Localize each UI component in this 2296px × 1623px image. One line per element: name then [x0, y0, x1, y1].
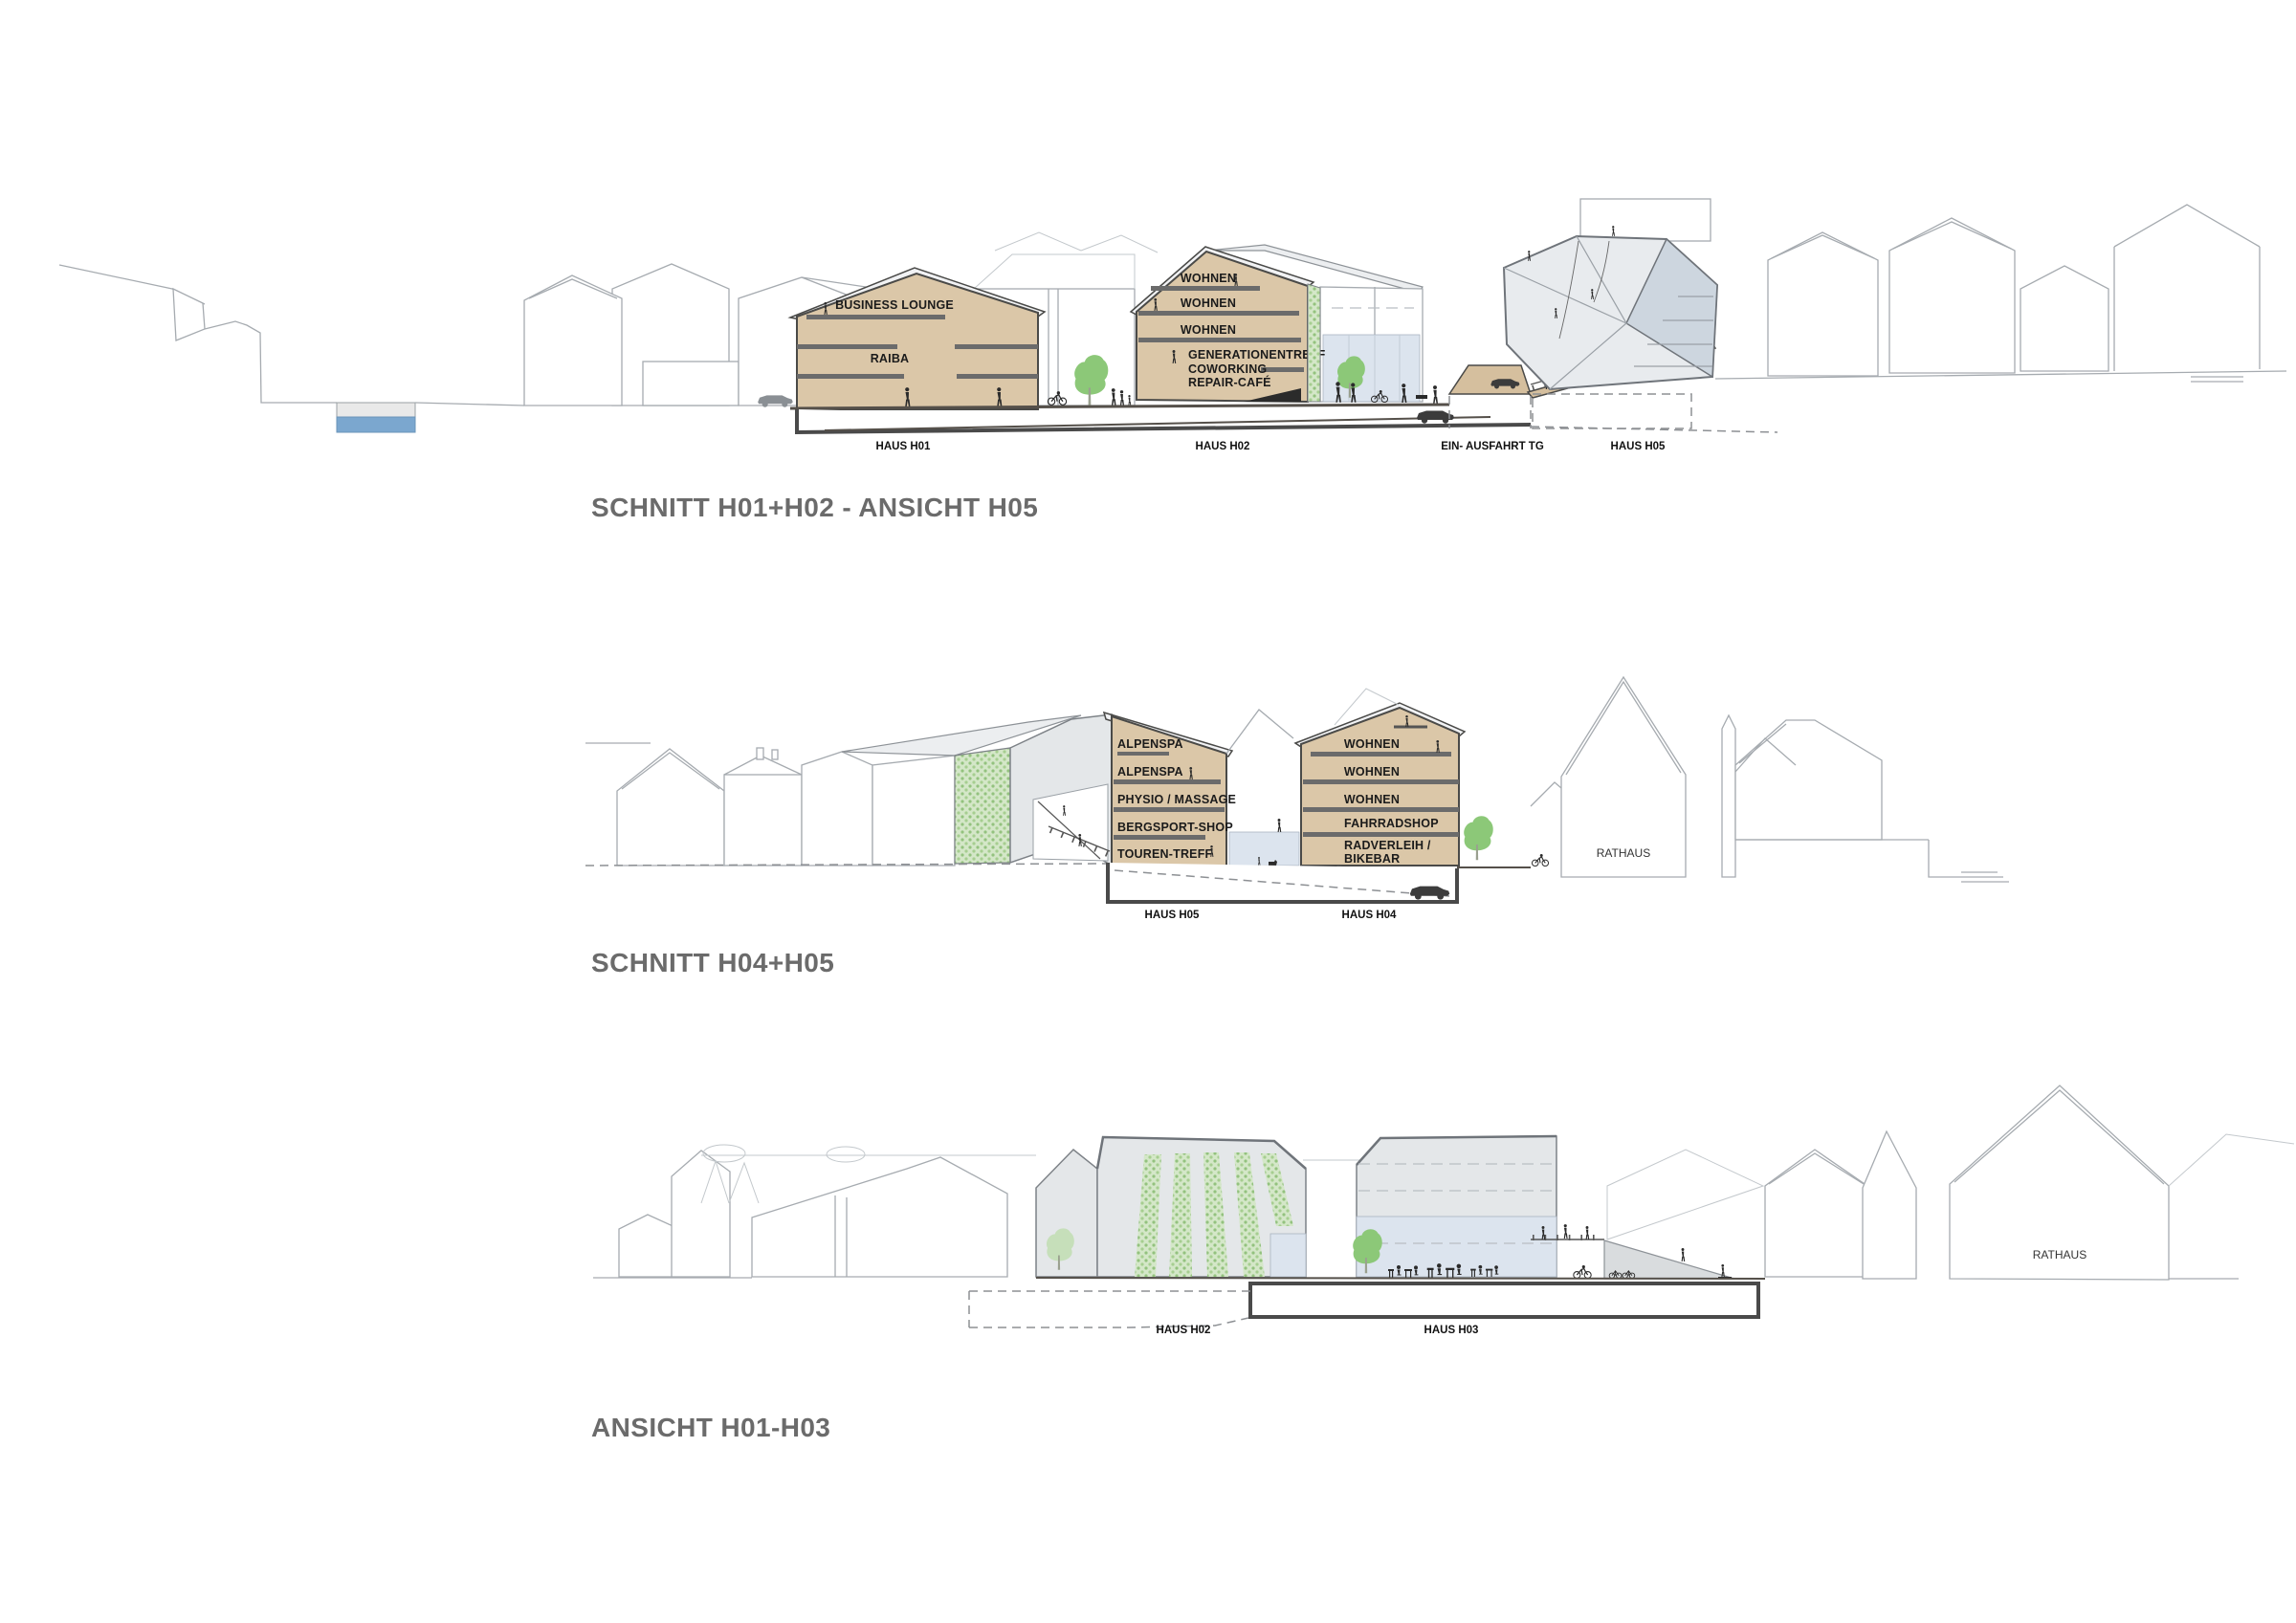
- haus-h05-section: ALPENSPA ALPENSPA PHYSIO / MASSAGE BERGS…: [1104, 713, 1236, 866]
- ground-label-tg: EIN- AUSFAHRT TG: [1441, 441, 1544, 452]
- context-buildings-left: [593, 1145, 1036, 1278]
- ramp-east: [1531, 1150, 1763, 1279]
- haus-h02-elevation: [1097, 1137, 1306, 1277]
- ground-label-h05: HAUS H05: [1145, 910, 1200, 921]
- cyclist-icon: [1532, 854, 1548, 866]
- water-basin: [337, 417, 415, 432]
- ground-label-h02: HAUS H02: [1196, 441, 1250, 452]
- ground-label-h04: HAUS H04: [1342, 910, 1397, 921]
- drawing-schnitt-h01-h02: BUSINESS LOUNGE RAIBA: [59, 199, 2286, 522]
- terrain-hut: [173, 289, 205, 340]
- haus-h04-section: WOHNEN WOHNEN WOHNEN FAHRRADSHOP RADVERL…: [1295, 689, 1465, 866]
- terrain-profile: [59, 265, 524, 432]
- person-icon: [1682, 1248, 1686, 1261]
- drawing-title: ANSICHT H01-H03: [591, 1413, 830, 1442]
- room-label-repair-cafe: REPAIR-CAFÉ: [1188, 375, 1271, 389]
- car-icon: [1417, 411, 1454, 424]
- room-label-wohnen: WOHNEN: [1344, 765, 1400, 779]
- ground-label-h01: HAUS H01: [876, 441, 931, 452]
- context-buildings-right: RATHAUS: [1531, 677, 2009, 882]
- architectural-sheet: BUSINESS LOUNGE RAIBA: [0, 0, 2296, 1623]
- context-buildings-right: RATHAUS: [1765, 1086, 2294, 1280]
- room-label-wohnen: WOHNEN: [1181, 296, 1236, 310]
- underground-garage: [585, 863, 1531, 902]
- h05-footprint-dashed: [1533, 394, 1691, 428]
- haus-h03-elevation: [1303, 1136, 1556, 1278]
- room-label-wohnen: WOHNEN: [1181, 323, 1236, 337]
- context-buildings-right: [1715, 205, 2286, 382]
- ground-label-h03: HAUS H03: [1424, 1325, 1479, 1336]
- room-label-wohnen: WOHNEN: [1344, 737, 1400, 751]
- cyclist-icon: [1574, 1265, 1591, 1279]
- context-label-rathaus: RATHAUS: [1597, 846, 1650, 860]
- tree-icon: [1464, 816, 1493, 860]
- drawing-schnitt-h04-h05: ALPENSPA ALPENSPA PHYSIO / MASSAGE BERGS…: [585, 677, 2009, 977]
- h03-basement-box: [1250, 1283, 1758, 1317]
- room-label-alpenspa: ALPENSPA: [1117, 765, 1183, 779]
- person-icon: [1564, 1224, 1568, 1239]
- room-label-wohnen: WOHNEN: [1344, 793, 1400, 806]
- water-basin-rim: [337, 403, 415, 417]
- room-label-bikebar: BIKEBAR: [1344, 852, 1400, 866]
- person-icon: [1433, 385, 1438, 404]
- room-label-coworking: COWORKING: [1188, 362, 1267, 376]
- drawing-canvas: BUSINESS LOUNGE RAIBA: [0, 0, 2296, 1623]
- room-label-bergsport: BERGSPORT-SHOP: [1117, 821, 1233, 834]
- drawing-title: SCHNITT H01+H02 - ANSICHT H05: [591, 493, 1038, 522]
- green-facade: [1308, 284, 1320, 402]
- room-label-raiba: RAIBA: [871, 352, 910, 365]
- room-label-fahrradshop: FAHRRADSHOP: [1344, 817, 1439, 830]
- person-icon: [1278, 819, 1282, 832]
- room-label-generationentreff: GENERATIONENTREFF: [1188, 348, 1326, 362]
- gray-gable-left: [1036, 1150, 1097, 1277]
- context-label-rathaus: RATHAUS: [2033, 1248, 2086, 1261]
- person-icon: [1586, 1226, 1590, 1239]
- atrium: [1226, 710, 1299, 866]
- drawing-title: SCHNITT H04+H05: [591, 948, 834, 977]
- ground-label-h02: HAUS H02: [1157, 1325, 1211, 1336]
- room-label-physio: PHYSIO / MASSAGE: [1117, 793, 1236, 806]
- ground-and-basement: [969, 1278, 1765, 1327]
- room-label-alpenspa: ALPENSPA: [1117, 737, 1183, 751]
- room-label-touren-treff: TOUREN-TREFF: [1117, 847, 1213, 861]
- room-label-business-lounge: BUSINESS LOUNGE: [835, 298, 954, 312]
- bench-icon: [1416, 395, 1427, 399]
- room-label-radverleih: RADVERLEIH /: [1344, 839, 1431, 852]
- drawing-ansicht-h01-h03: RATHAUS HAUS H02 HAUS H03 ANSICHT H01-H0…: [591, 1086, 2294, 1442]
- haus-h02-section: WOHNEN WOHNEN WOHNEN GENERATIONENTREFF C…: [1131, 247, 1326, 402]
- green-facade: [955, 748, 1010, 864]
- room-label-wohnen: WOHNEN: [1181, 272, 1236, 285]
- ground-label-h05: HAUS H05: [1611, 441, 1666, 452]
- haus-h05-elevation: [1504, 199, 1717, 389]
